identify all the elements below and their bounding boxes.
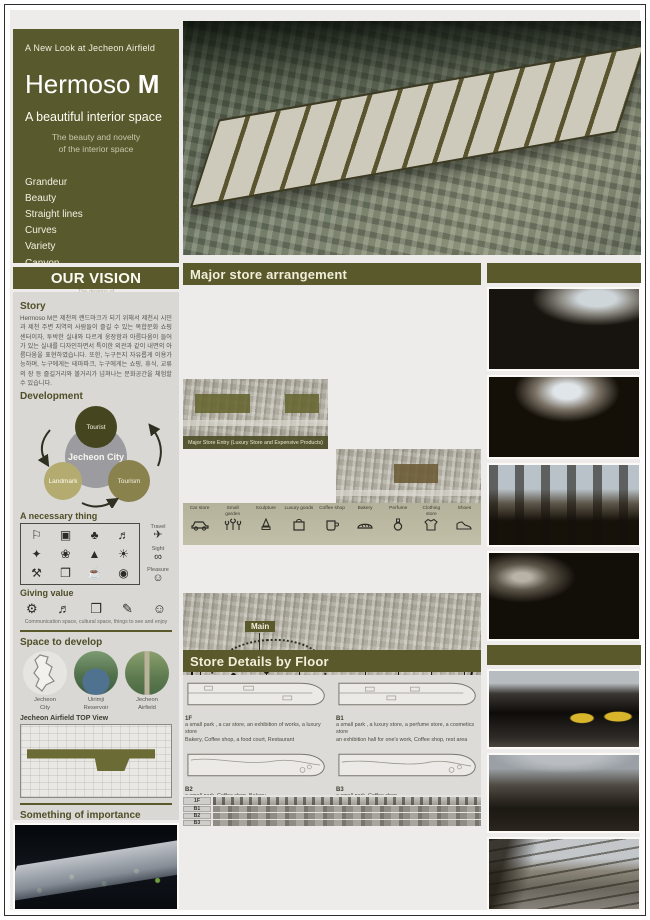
store-item: Perfume bbox=[382, 506, 415, 531]
space-label: Jecheon City bbox=[20, 697, 70, 712]
luxury-bag-icon bbox=[290, 518, 308, 531]
shoe-icon bbox=[455, 518, 473, 531]
store-item: Bakery bbox=[349, 506, 382, 531]
stage-icon: ♬ bbox=[109, 526, 138, 545]
topview-heading: Jecheon Airfield TOP View bbox=[20, 715, 172, 722]
coffee-icon bbox=[323, 518, 341, 531]
title-main: Hermoso bbox=[25, 69, 130, 99]
section-bar bbox=[213, 813, 481, 819]
section-row-b2: B2 bbox=[183, 813, 481, 819]
importance-heading: Something of importance bbox=[20, 810, 172, 820]
keyword-item: Beauty bbox=[25, 191, 167, 207]
store-item: Car store bbox=[183, 506, 216, 531]
store-item: Shoes bbox=[448, 506, 481, 531]
store-item: Small garden bbox=[216, 506, 249, 531]
mall-building-shape bbox=[190, 44, 641, 208]
keyword-item: Variety bbox=[25, 239, 167, 255]
space-heading: Space to develop bbox=[20, 637, 172, 648]
section-label: 1F bbox=[183, 797, 211, 805]
parking-map-size: The size of the parking lot that embrace… bbox=[183, 915, 328, 916]
curtain-icon: ♬ bbox=[58, 601, 71, 617]
arrangement-caption: Major Store Entry (Luxury Store and Expe… bbox=[183, 436, 328, 449]
section-label: B3 bbox=[183, 820, 211, 826]
ride-icon: ✦ bbox=[22, 545, 51, 564]
project-tagline: A beautiful interior space bbox=[25, 110, 167, 124]
store-label: Shoes bbox=[448, 506, 481, 517]
community-icon: ⚙ bbox=[26, 601, 38, 617]
development-heading: Development bbox=[20, 391, 172, 402]
poster-board: A New Look at Jecheon Airfield Hermoso M… bbox=[4, 4, 646, 916]
road-band bbox=[336, 490, 481, 496]
space-item-city: Jecheon City bbox=[20, 651, 70, 712]
store-label: Clothing store bbox=[415, 506, 448, 517]
forest-icon: ♣ bbox=[80, 526, 109, 545]
section-label: B1 bbox=[183, 806, 211, 812]
floor-desc: a small park , a car store, an exhibitio… bbox=[185, 722, 328, 744]
necessary-things: ⚐ ▣ ♣ ♬ ✦ ❀ ▲ ☀ ⚒ ❒ ☕ ◉ Travel✈ Sight∞ P… bbox=[20, 523, 172, 585]
runway-shape bbox=[27, 749, 155, 771]
title-accent: M bbox=[138, 69, 160, 99]
project-title: Hermoso M bbox=[25, 69, 167, 100]
store-item: Sculpture bbox=[249, 506, 282, 531]
store-label: Car store bbox=[183, 506, 216, 517]
necessary-icon-grid: ⚐ ▣ ♣ ♬ ✦ ❀ ▲ ☀ ⚒ ❒ ☕ ◉ bbox=[20, 523, 140, 585]
crowd-icon: ☺ bbox=[153, 601, 166, 617]
lit-building-shape bbox=[13, 838, 179, 903]
section-row-b1: B1 bbox=[183, 806, 481, 812]
necessary-heading: A necessary thing bbox=[20, 511, 172, 521]
keyword-item: Straight lines bbox=[25, 207, 167, 223]
uirimji-photo bbox=[74, 651, 118, 695]
car-icon bbox=[191, 518, 209, 531]
story-heading: Story bbox=[20, 301, 172, 312]
smile-icon: ☺ bbox=[144, 573, 172, 584]
cross-section-strip: 1F B1 B2 B3 bbox=[183, 795, 481, 823]
interior-photo-2 bbox=[487, 375, 641, 459]
section-divider bbox=[20, 630, 172, 632]
section-row-1f: 1F bbox=[183, 797, 481, 805]
garden-icon bbox=[224, 518, 242, 531]
floorplan-drawing bbox=[336, 679, 479, 709]
cube-icon: ❒ bbox=[90, 601, 102, 617]
store-item: Coffee shop bbox=[315, 506, 348, 531]
topview-sketch bbox=[20, 724, 172, 798]
major-store-header: Major store arrangement bbox=[183, 263, 481, 285]
store-label: Coffee shop bbox=[315, 506, 348, 517]
space-label: Jecheon Airfield bbox=[122, 697, 172, 712]
title-panel: A New Look at Jecheon Airfield Hermoso M… bbox=[13, 29, 179, 263]
walkway-photo bbox=[487, 837, 641, 911]
zone-overlay bbox=[394, 464, 438, 482]
giving-caption: Communication space, cultural space, thi… bbox=[20, 619, 172, 625]
car-showroom-photo bbox=[487, 669, 641, 749]
binoculars-icon: ∞ bbox=[144, 552, 172, 563]
floor-details-header: Store Details by Floor bbox=[183, 650, 481, 672]
section-row-b3: B3 bbox=[183, 820, 481, 826]
section-bar bbox=[213, 806, 481, 812]
zone-overlay bbox=[285, 394, 320, 412]
necessary-side-labels: Travel✈ Sight∞ Pleasure☺ bbox=[140, 523, 172, 585]
space-to-develop: Jecheon City Uirimji Reservoir Jecheon A… bbox=[20, 651, 172, 712]
floorplan-drawing bbox=[185, 679, 328, 709]
section-bar bbox=[213, 797, 481, 805]
floor-plans: 1F a small park , a car store, an exhibi… bbox=[183, 675, 481, 795]
airfield-photo bbox=[125, 651, 169, 695]
vision-panel: Story Hermoso M은 제천의 랜드마크가 되기 위해서 제천시 시민… bbox=[13, 292, 179, 820]
store-label: Bakery bbox=[349, 506, 382, 517]
development-diagram: Jecheon City Tourist Landmark Tourism bbox=[20, 404, 172, 508]
interior-photo-3 bbox=[487, 463, 641, 547]
art-frame-icon: ✎ bbox=[122, 601, 133, 617]
keyword-item: Curves bbox=[25, 223, 167, 239]
beach-icon: ☀ bbox=[109, 545, 138, 564]
night-render-photo bbox=[13, 823, 179, 911]
floorplan-drawing bbox=[185, 750, 328, 780]
store-icon-strip: Car store Small garden Sculpture Luxury … bbox=[183, 503, 481, 545]
giving-heading: Giving value bbox=[20, 588, 172, 598]
shopping-icon: ❒ bbox=[51, 564, 80, 583]
floor-desc: a small park , a luxury store, a perfume… bbox=[336, 722, 479, 744]
giving-icons: ⚙ ♬ ❒ ✎ ☺ bbox=[20, 600, 172, 618]
sculpture-icon bbox=[257, 518, 275, 531]
project-description: The beauty and novelty of the interior s… bbox=[25, 131, 167, 156]
store-label: Sculpture bbox=[249, 506, 282, 517]
section-bar bbox=[213, 820, 481, 826]
floor-plan-1f: 1F a small park , a car store, an exhibi… bbox=[185, 679, 328, 744]
floor-plan-b1: B1 a small park , a luxury store, a perf… bbox=[336, 679, 479, 744]
bread-icon bbox=[356, 518, 374, 531]
store-label: Small garden bbox=[216, 506, 249, 517]
store-label: Luxury goods bbox=[282, 506, 315, 517]
store-item: Luxury goods bbox=[282, 506, 315, 531]
vision-header: OUR VISION bbox=[13, 267, 179, 289]
space-item-airfield: Jecheon Airfield bbox=[122, 651, 172, 712]
dining-icon: ⚒ bbox=[22, 564, 51, 583]
right-column-divider-bar bbox=[487, 645, 641, 665]
perfume-icon bbox=[389, 518, 407, 531]
interior-photo-4 bbox=[487, 551, 641, 641]
jecheon-map-sketch bbox=[23, 651, 67, 695]
mountain-icon: ▲ bbox=[80, 545, 109, 564]
floorplan-drawing bbox=[336, 750, 479, 780]
hero-aerial-render bbox=[183, 21, 641, 255]
cycle-arrows-icon bbox=[20, 404, 172, 508]
arrangement-map-luxury: Major Store Entry (Luxury Store and Expe… bbox=[183, 379, 328, 449]
interior-photo-1 bbox=[487, 287, 641, 371]
keyword-item: Grandeur bbox=[25, 175, 167, 191]
story-body: Hermoso M은 제천의 랜드마크가 되기 위해서 제천시 시민과 제천 주… bbox=[20, 314, 172, 388]
zone-overlay bbox=[195, 394, 250, 412]
section-divider bbox=[20, 803, 172, 805]
cafe-table-icon: ☕ bbox=[80, 564, 109, 583]
road-band bbox=[183, 420, 328, 426]
camera-icon: ◉ bbox=[109, 564, 138, 583]
right-column-divider-bar bbox=[487, 263, 641, 283]
main-label: Main bbox=[245, 621, 275, 632]
tour-map-icon: ⚐ bbox=[22, 526, 51, 545]
garden-icon: ❀ bbox=[51, 545, 80, 564]
bus-icon: ▣ bbox=[51, 526, 80, 545]
section-label: B2 bbox=[183, 813, 211, 819]
travel-icon: ✈ bbox=[144, 530, 172, 541]
shirt-icon bbox=[422, 518, 440, 531]
atrium-photo bbox=[487, 753, 641, 833]
space-item-reservoir: Uirimji Reservoir bbox=[71, 651, 121, 712]
project-subtitle: A New Look at Jecheon Airfield bbox=[25, 43, 167, 53]
space-label: Uirimji Reservoir bbox=[71, 697, 121, 712]
store-label: Perfume bbox=[382, 506, 415, 517]
store-item: Clothing store bbox=[415, 506, 448, 531]
